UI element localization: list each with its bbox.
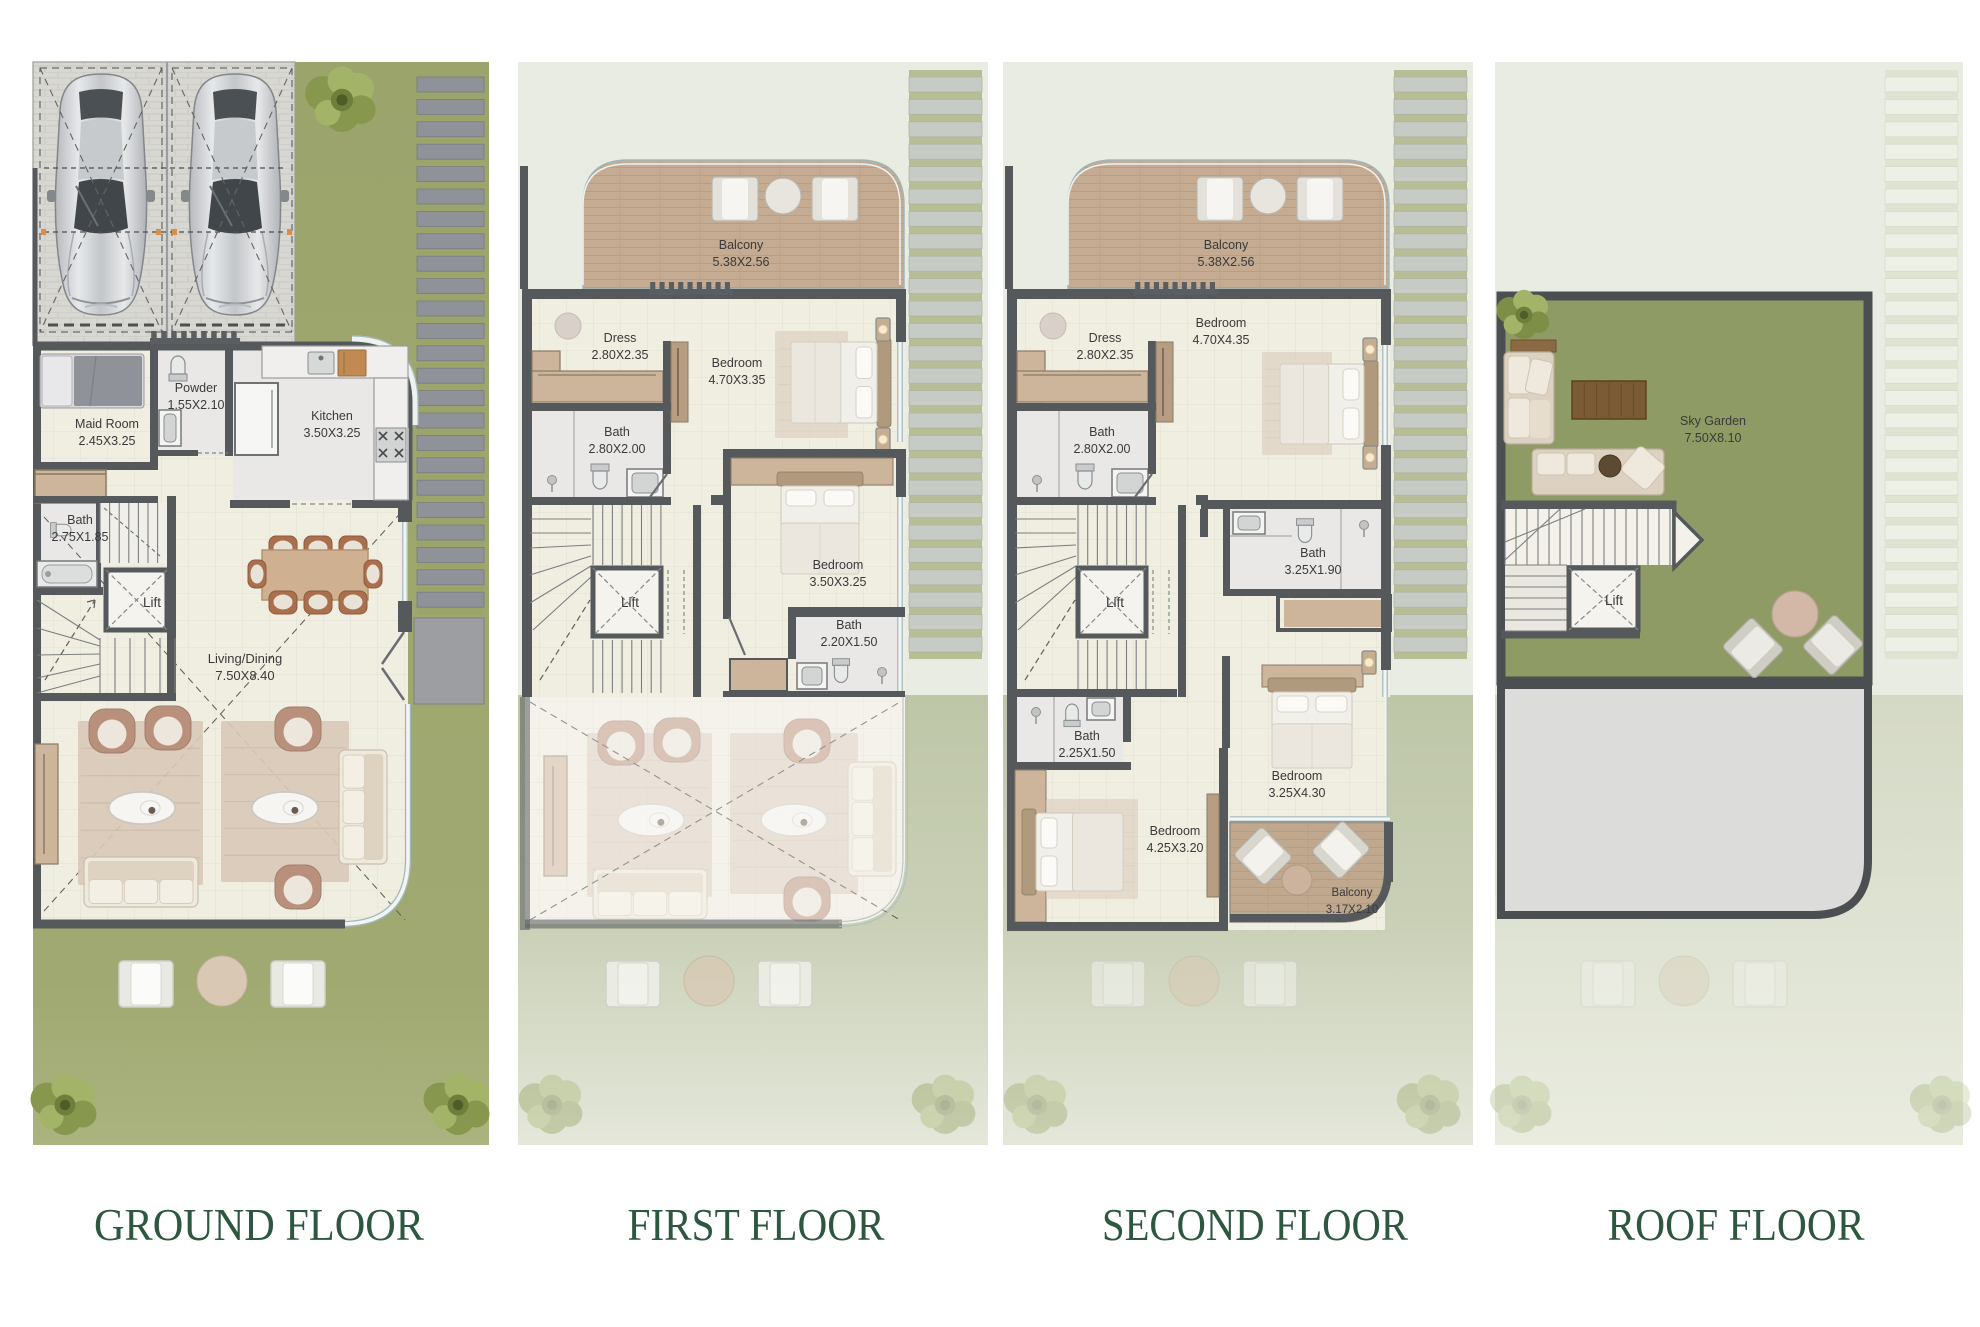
svg-text:5.38X2.56: 5.38X2.56 (1198, 255, 1255, 269)
svg-text:Living/Dining: Living/Dining (208, 651, 282, 666)
svg-text:Bath: Bath (836, 618, 862, 632)
svg-text:Maid Room: Maid Room (75, 417, 139, 431)
svg-text:Dress: Dress (604, 331, 637, 345)
svg-text:Kitchen: Kitchen (311, 409, 353, 423)
svg-text:Lift: Lift (143, 595, 161, 610)
svg-text:GROUND FLOOR: GROUND FLOOR (94, 1199, 424, 1250)
svg-text:Bath: Bath (67, 513, 93, 527)
svg-text:Bedroom: Bedroom (813, 558, 864, 572)
svg-text:4.25X3.20: 4.25X3.20 (1147, 841, 1204, 855)
svg-text:Bath: Bath (1074, 729, 1100, 743)
svg-text:Balcony: Balcony (1204, 238, 1249, 252)
svg-text:2.80X2.35: 2.80X2.35 (1077, 348, 1134, 362)
svg-text:4.70X4.35: 4.70X4.35 (1193, 333, 1250, 347)
svg-text:3.50X3.25: 3.50X3.25 (304, 426, 361, 440)
svg-text:FIRST FLOOR: FIRST FLOOR (628, 1199, 885, 1250)
svg-text:Bedroom: Bedroom (712, 356, 763, 370)
svg-text:2.25X1.50: 2.25X1.50 (1059, 746, 1116, 760)
svg-text:3.17X2.10: 3.17X2.10 (1326, 904, 1378, 916)
svg-text:Bath: Bath (604, 425, 630, 439)
svg-text:Balcony: Balcony (1332, 887, 1373, 899)
svg-text:5.38X2.56: 5.38X2.56 (713, 255, 770, 269)
svg-text:Bath: Bath (1300, 546, 1326, 560)
svg-text:7.50X8.10: 7.50X8.10 (1685, 431, 1742, 445)
svg-text:Lift: Lift (621, 595, 639, 610)
svg-text:2.80X2.00: 2.80X2.00 (1074, 442, 1131, 456)
svg-text:2.80X2.00: 2.80X2.00 (589, 442, 646, 456)
svg-text:SECOND FLOOR: SECOND FLOOR (1102, 1199, 1408, 1250)
svg-text:Bedroom: Bedroom (1150, 824, 1201, 838)
svg-text:3.50X3.25: 3.50X3.25 (810, 575, 867, 589)
svg-text:Bath: Bath (1089, 425, 1115, 439)
svg-text:2.20X1.50: 2.20X1.50 (821, 635, 878, 649)
svg-text:Balcony: Balcony (719, 238, 764, 252)
svg-text:2.80X2.35: 2.80X2.35 (592, 348, 649, 362)
svg-text:3.25X4.30: 3.25X4.30 (1269, 786, 1326, 800)
svg-text:3.25X1.90: 3.25X1.90 (1285, 563, 1342, 577)
svg-text:2.75X1.85: 2.75X1.85 (52, 530, 109, 544)
svg-text:4.70X3.35: 4.70X3.35 (709, 373, 766, 387)
svg-text:Bedroom: Bedroom (1272, 769, 1323, 783)
svg-text:Lift: Lift (1106, 595, 1124, 610)
svg-text:Lift: Lift (1605, 593, 1623, 608)
svg-text:Dress: Dress (1089, 331, 1122, 345)
svg-text:Powder: Powder (175, 381, 217, 395)
svg-text:Bedroom: Bedroom (1196, 316, 1247, 330)
svg-text:2.45X3.25: 2.45X3.25 (79, 434, 136, 448)
svg-text:ROOF FLOOR: ROOF FLOOR (1608, 1199, 1865, 1250)
svg-text:Sky Garden: Sky Garden (1680, 414, 1746, 428)
svg-text:7.50X8.40: 7.50X8.40 (215, 668, 274, 683)
svg-text:1.55X2.10: 1.55X2.10 (168, 398, 225, 412)
